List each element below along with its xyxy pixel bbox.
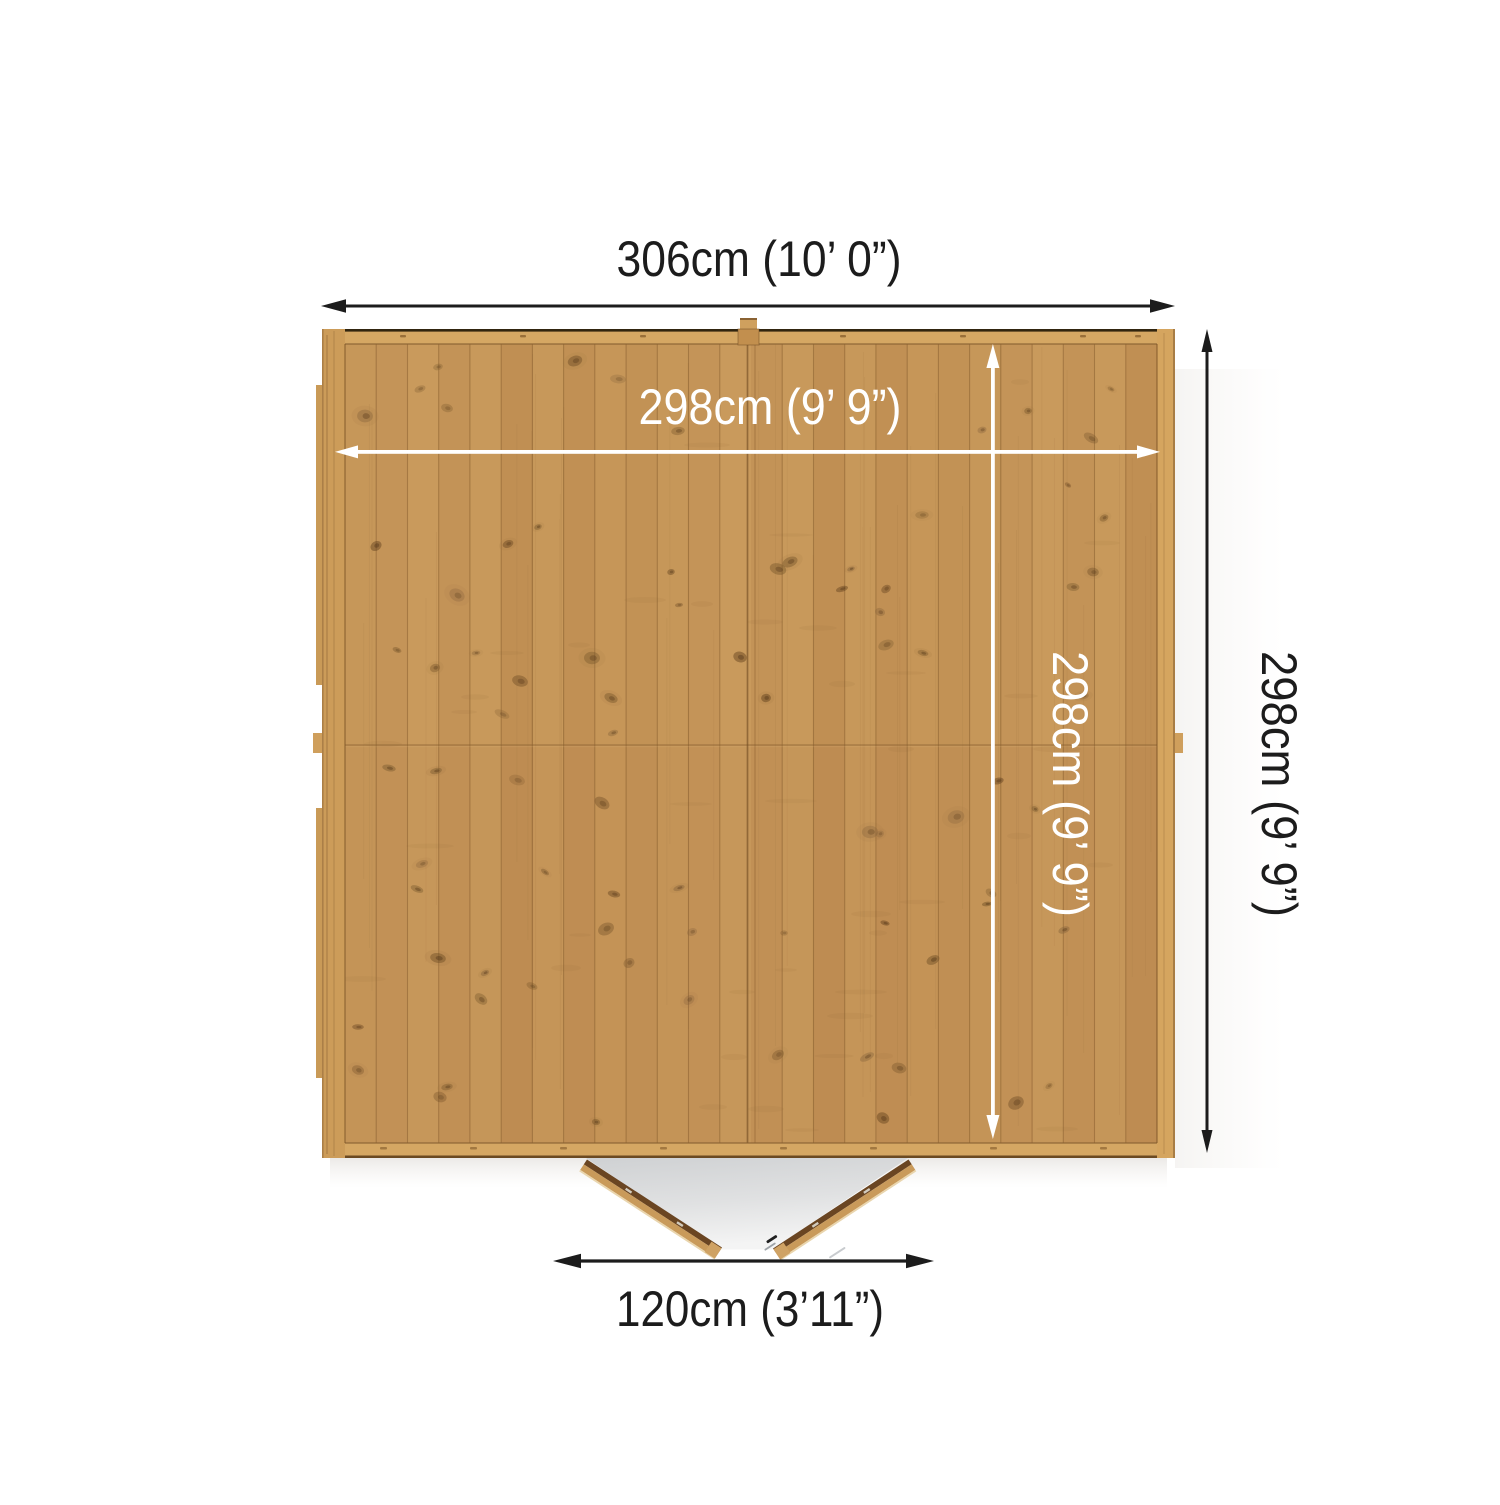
svg-text:298cm (9’ 9”): 298cm (9’ 9”) [1251, 651, 1307, 917]
svg-text:306cm (10’ 0”): 306cm (10’ 0”) [617, 231, 902, 287]
svg-text:298cm (9’ 9”): 298cm (9’ 9”) [1042, 651, 1098, 917]
svg-text:120cm (3’11”): 120cm (3’11”) [616, 1281, 884, 1337]
svg-text:298cm (9’ 9”): 298cm (9’ 9”) [639, 379, 902, 435]
